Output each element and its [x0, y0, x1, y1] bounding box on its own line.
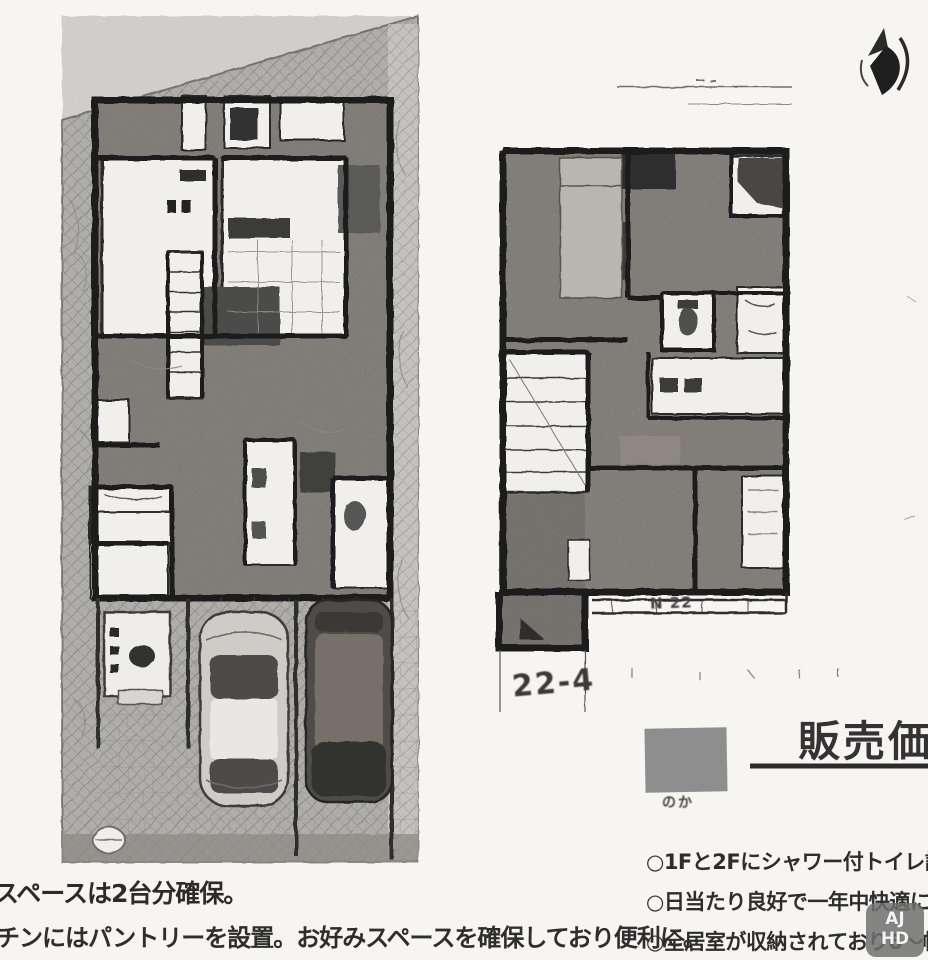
kitchen-counter: [228, 218, 290, 238]
room-vanity-2f: [737, 287, 784, 353]
stairs-1f: [168, 252, 202, 398]
stairs-2f: [504, 352, 588, 492]
floor-plan-1f: [62, 16, 418, 862]
dimension-label: 22-4: [511, 662, 597, 704]
balcony-dimension-note: N 22: [650, 593, 693, 612]
watermark-badge: AJ HD: [866, 903, 924, 957]
toilet-fixture: [678, 308, 698, 336]
price-heading: 販売価格: [798, 708, 928, 769]
flyer-page: 22-4 N 22 販売価格 のか ○1Fと2Fにシャワー付トイレ設 ○日当たり…: [0, 0, 928, 960]
feature-item: ○1Fと2Fにシャワー付トイレ設: [646, 842, 928, 882]
legend-swatch: [644, 727, 727, 792]
room-bath-1f: [90, 487, 172, 543]
room-washroom-1f: [90, 543, 168, 598]
room-toilet-1f: [333, 478, 390, 588]
storage-box: [104, 612, 170, 704]
car-van-icon: [306, 600, 392, 802]
watermark-line-2: HD: [881, 930, 909, 950]
room-hall-1f: [245, 440, 295, 565]
floor-plan-graphics: [0, 0, 928, 960]
car-sedan-icon: [200, 612, 288, 806]
bed-main-2f: [560, 158, 622, 298]
watermark-line-1: AJ: [885, 910, 904, 930]
note-line-1: スペースは2台分確保。: [0, 874, 247, 910]
note-line-2: チンにはパントリーを設置。お好みスペースを確保しており便利に。: [0, 918, 706, 953]
north-arrow-icon: [861, 28, 908, 95]
legend-swatch-caption: のか: [662, 792, 694, 812]
parking-area: [93, 598, 418, 860]
floor-plan-2f: [499, 80, 916, 712]
